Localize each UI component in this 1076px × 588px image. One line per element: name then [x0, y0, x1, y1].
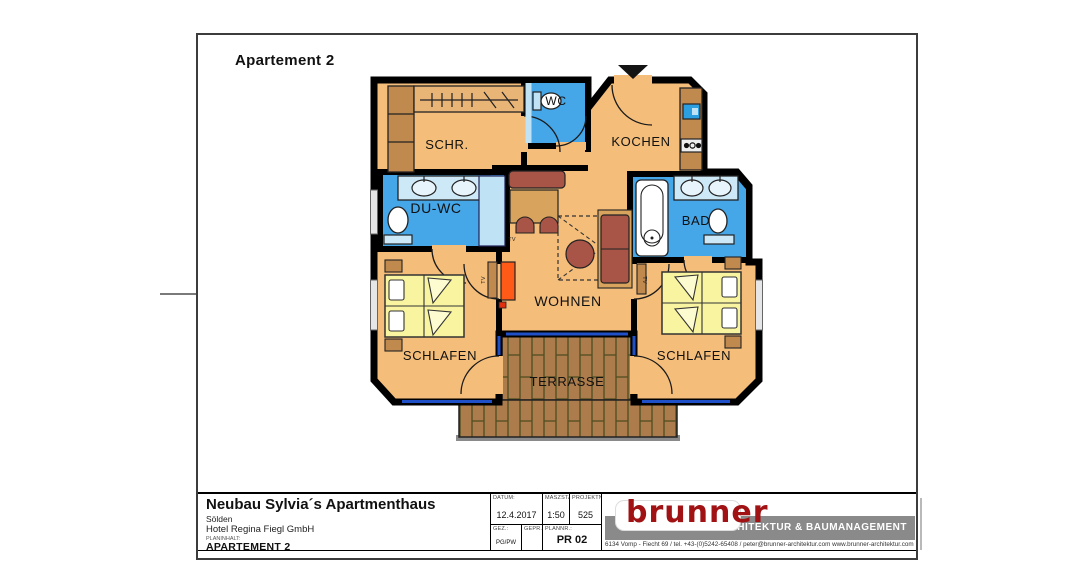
kitchen-counter: [680, 88, 702, 170]
field-datum-label: DATUM:: [493, 495, 515, 501]
chair-icon: [516, 217, 534, 233]
shower-icon: [479, 176, 505, 246]
toilet-icon: [388, 207, 408, 233]
sink-icon: [412, 180, 436, 196]
toilet-icon: [709, 209, 727, 233]
sink-icon: [681, 180, 703, 196]
drawing-sheet: Apartement 2: [196, 33, 918, 560]
project-client: Hotel Regina Fiegl GmbH: [206, 524, 314, 535]
sheet-title: Apartement 2: [235, 52, 334, 69]
nightstand: [385, 260, 402, 272]
fold-mark-line: [160, 293, 197, 295]
label-terrasse: TERRASSE: [530, 374, 605, 389]
field-projektnr-value: 525: [570, 510, 601, 520]
floor-plan: WC SCHR. KOCHEN DU-WC BAD WOHNEN SCHLAFE…: [352, 64, 772, 444]
label-bad: BAD: [682, 213, 711, 228]
fireplace: [501, 262, 515, 300]
project-location: Sölden: [206, 514, 232, 524]
field-plannr-label: PLANNR.:: [545, 526, 572, 532]
field-massstab: MASZSTAB: 1:50: [542, 494, 569, 525]
field-gez-label: GEZ.:: [493, 526, 508, 532]
sink-icon: [452, 180, 476, 196]
nightstand: [725, 257, 741, 269]
label-tv-wohnen: TV: [481, 276, 487, 284]
pillow: [722, 277, 737, 297]
label-tv-duwc: TV: [508, 237, 516, 243]
firm-address: 6134 Vomp - Fiecht 69 / tel. +43-(0)5242…: [605, 541, 915, 548]
field-gepr-label: GEPR.:: [524, 526, 544, 532]
nightstand: [385, 339, 402, 351]
field-gez-value: PG/PW: [491, 540, 521, 546]
field-massstab-value: 1:50: [543, 510, 569, 520]
chair-icon: [540, 217, 558, 233]
label-schlafen-links: SCHLAFEN: [403, 348, 477, 363]
title-block: Neubau Sylvia´s Apartmenthaus Sölden Hot…: [198, 492, 916, 549]
plot-stamp-strip: [920, 498, 922, 550]
firm-logo: brunner: [616, 501, 740, 530]
label-kochen: KOCHEN: [611, 134, 670, 149]
label-wc: WC: [545, 94, 566, 108]
screenshot-canvas: Apartement 2: [0, 0, 1076, 588]
plan-content-value: APARTEMENT 2: [206, 541, 291, 553]
sink-icon: [709, 180, 731, 196]
label-schrank: SCHR.: [425, 137, 468, 152]
pillow: [389, 311, 404, 331]
label-duwc: DU-WC: [410, 200, 461, 216]
field-gepr: GEPR.:: [521, 525, 542, 551]
firm-block: ARCHITEKTUR & BAUMANAGEMENT brunner 6134…: [601, 494, 916, 551]
title-block-project-cell: Neubau Sylvia´s Apartmenthaus Sölden Hot…: [198, 494, 490, 551]
field-plannr-value: PR 02: [543, 534, 601, 546]
round-table: [566, 240, 594, 268]
dining-bench: [509, 171, 565, 188]
field-projektnr: PROJEKTNR.: 525: [569, 494, 601, 525]
label-tv-schlafen: TV: [641, 276, 647, 284]
field-gez: GEZ.: PG/PW: [490, 525, 521, 551]
pillow: [389, 280, 404, 300]
pillow: [722, 308, 737, 328]
firm-logo-text: brunner: [626, 495, 768, 530]
field-datum: DATUM: 12.4.2017: [490, 494, 542, 525]
label-wohnen: WOHNEN: [534, 293, 601, 309]
nightstand: [725, 336, 741, 348]
floor-plan-svg: WC SCHR. KOCHEN DU-WC BAD WOHNEN SCHLAFE…: [352, 64, 772, 444]
project-name: Neubau Sylvia´s Apartmenthaus: [206, 496, 436, 513]
label-schlafen-rechts: SCHLAFEN: [657, 348, 731, 363]
field-datum-value: 12.4.2017: [491, 510, 542, 520]
tv-cabinet: [488, 262, 497, 298]
field-plannr: PLANNR.: PR 02: [542, 525, 601, 551]
